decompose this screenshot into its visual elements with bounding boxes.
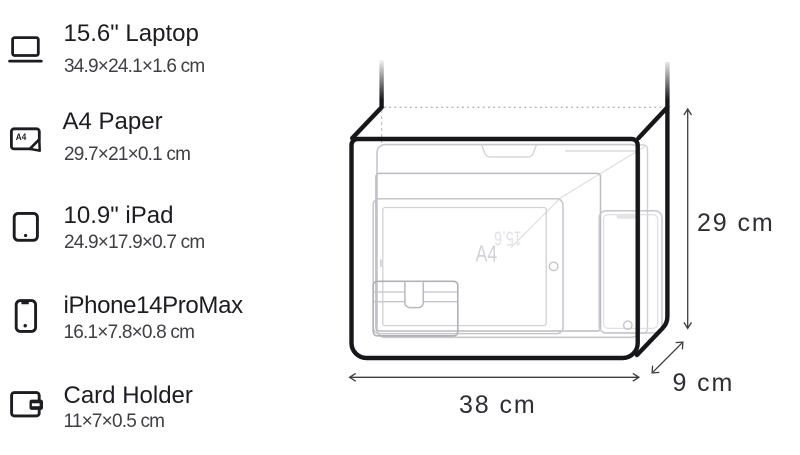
svg-text:A4: A4 [16, 132, 27, 143]
svg-text:A4: A4 [476, 241, 498, 267]
svg-text:15.6: 15.6 [494, 227, 521, 249]
